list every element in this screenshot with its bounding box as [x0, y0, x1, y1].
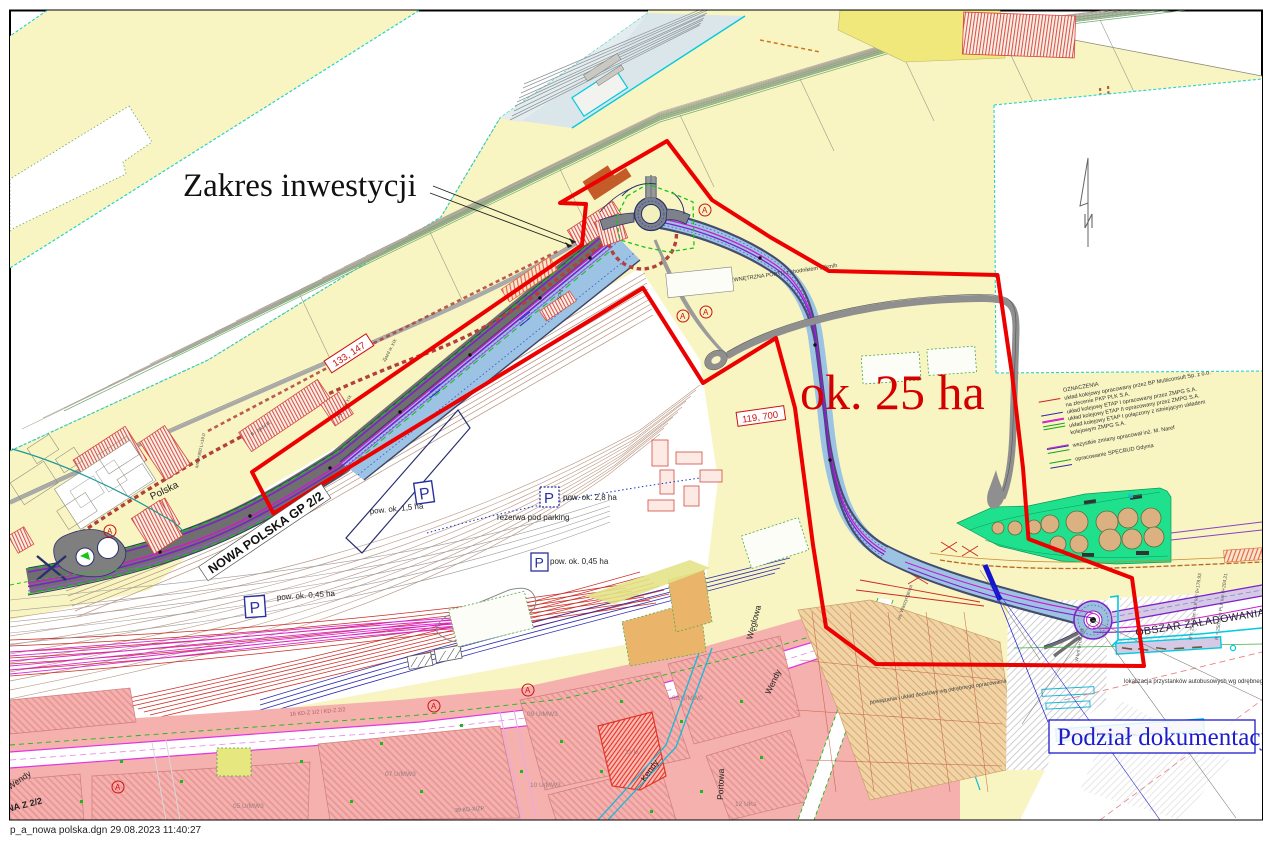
svg-text:pow. ok. 2,8 ha: pow. ok. 2,8 ha — [563, 493, 617, 502]
svg-text:10 U/MW3: 10 U/MW3 — [530, 782, 561, 789]
svg-text:07 U/MW3: 07 U/MW3 — [385, 771, 416, 778]
svg-text:11 U: 11 U — [625, 749, 639, 756]
svg-text:P: P — [249, 600, 261, 618]
svg-text:Portowa: Portowa — [715, 768, 726, 800]
svg-text:p_a_nowa polska.dgn 29.08.2023: p_a_nowa polska.dgn 29.08.2023 11:40:27 — [10, 825, 202, 836]
svg-text:05 U/MW3: 05 U/MW3 — [233, 803, 264, 810]
svg-text:09 U/MW3: 09 U/MW3 — [527, 711, 558, 718]
svg-text:P: P — [544, 490, 554, 507]
svg-text:P: P — [535, 555, 544, 571]
svg-text:pow. ok. 0,45 ha: pow. ok. 0,45 ha — [550, 557, 609, 566]
svg-text:A: A — [115, 783, 121, 792]
svg-text:12 UKs: 12 UKs — [735, 801, 757, 808]
svg-text:Podział dokumentacji: Podział dokumentacji — [1057, 724, 1274, 751]
svg-text:A: A — [525, 686, 531, 695]
svg-text:A: A — [680, 312, 686, 321]
svg-text:rezerwa pod parking: rezerwa pod parking — [497, 513, 569, 522]
svg-text:02 U/MW0: 02 U/MW0 — [672, 695, 703, 702]
svg-text:Zakres inwestycji: Zakres inwestycji — [183, 168, 417, 204]
svg-text:A: A — [702, 206, 708, 215]
svg-text:A: A — [703, 308, 709, 317]
svg-text:A: A — [431, 702, 437, 711]
svg-text:A: A — [107, 527, 113, 536]
svg-text:ok. 25 ha: ok. 25 ha — [800, 364, 985, 420]
svg-text:lokalizacja przystanków autobu: lokalizacja przystanków autobusowych wg … — [1124, 679, 1277, 685]
